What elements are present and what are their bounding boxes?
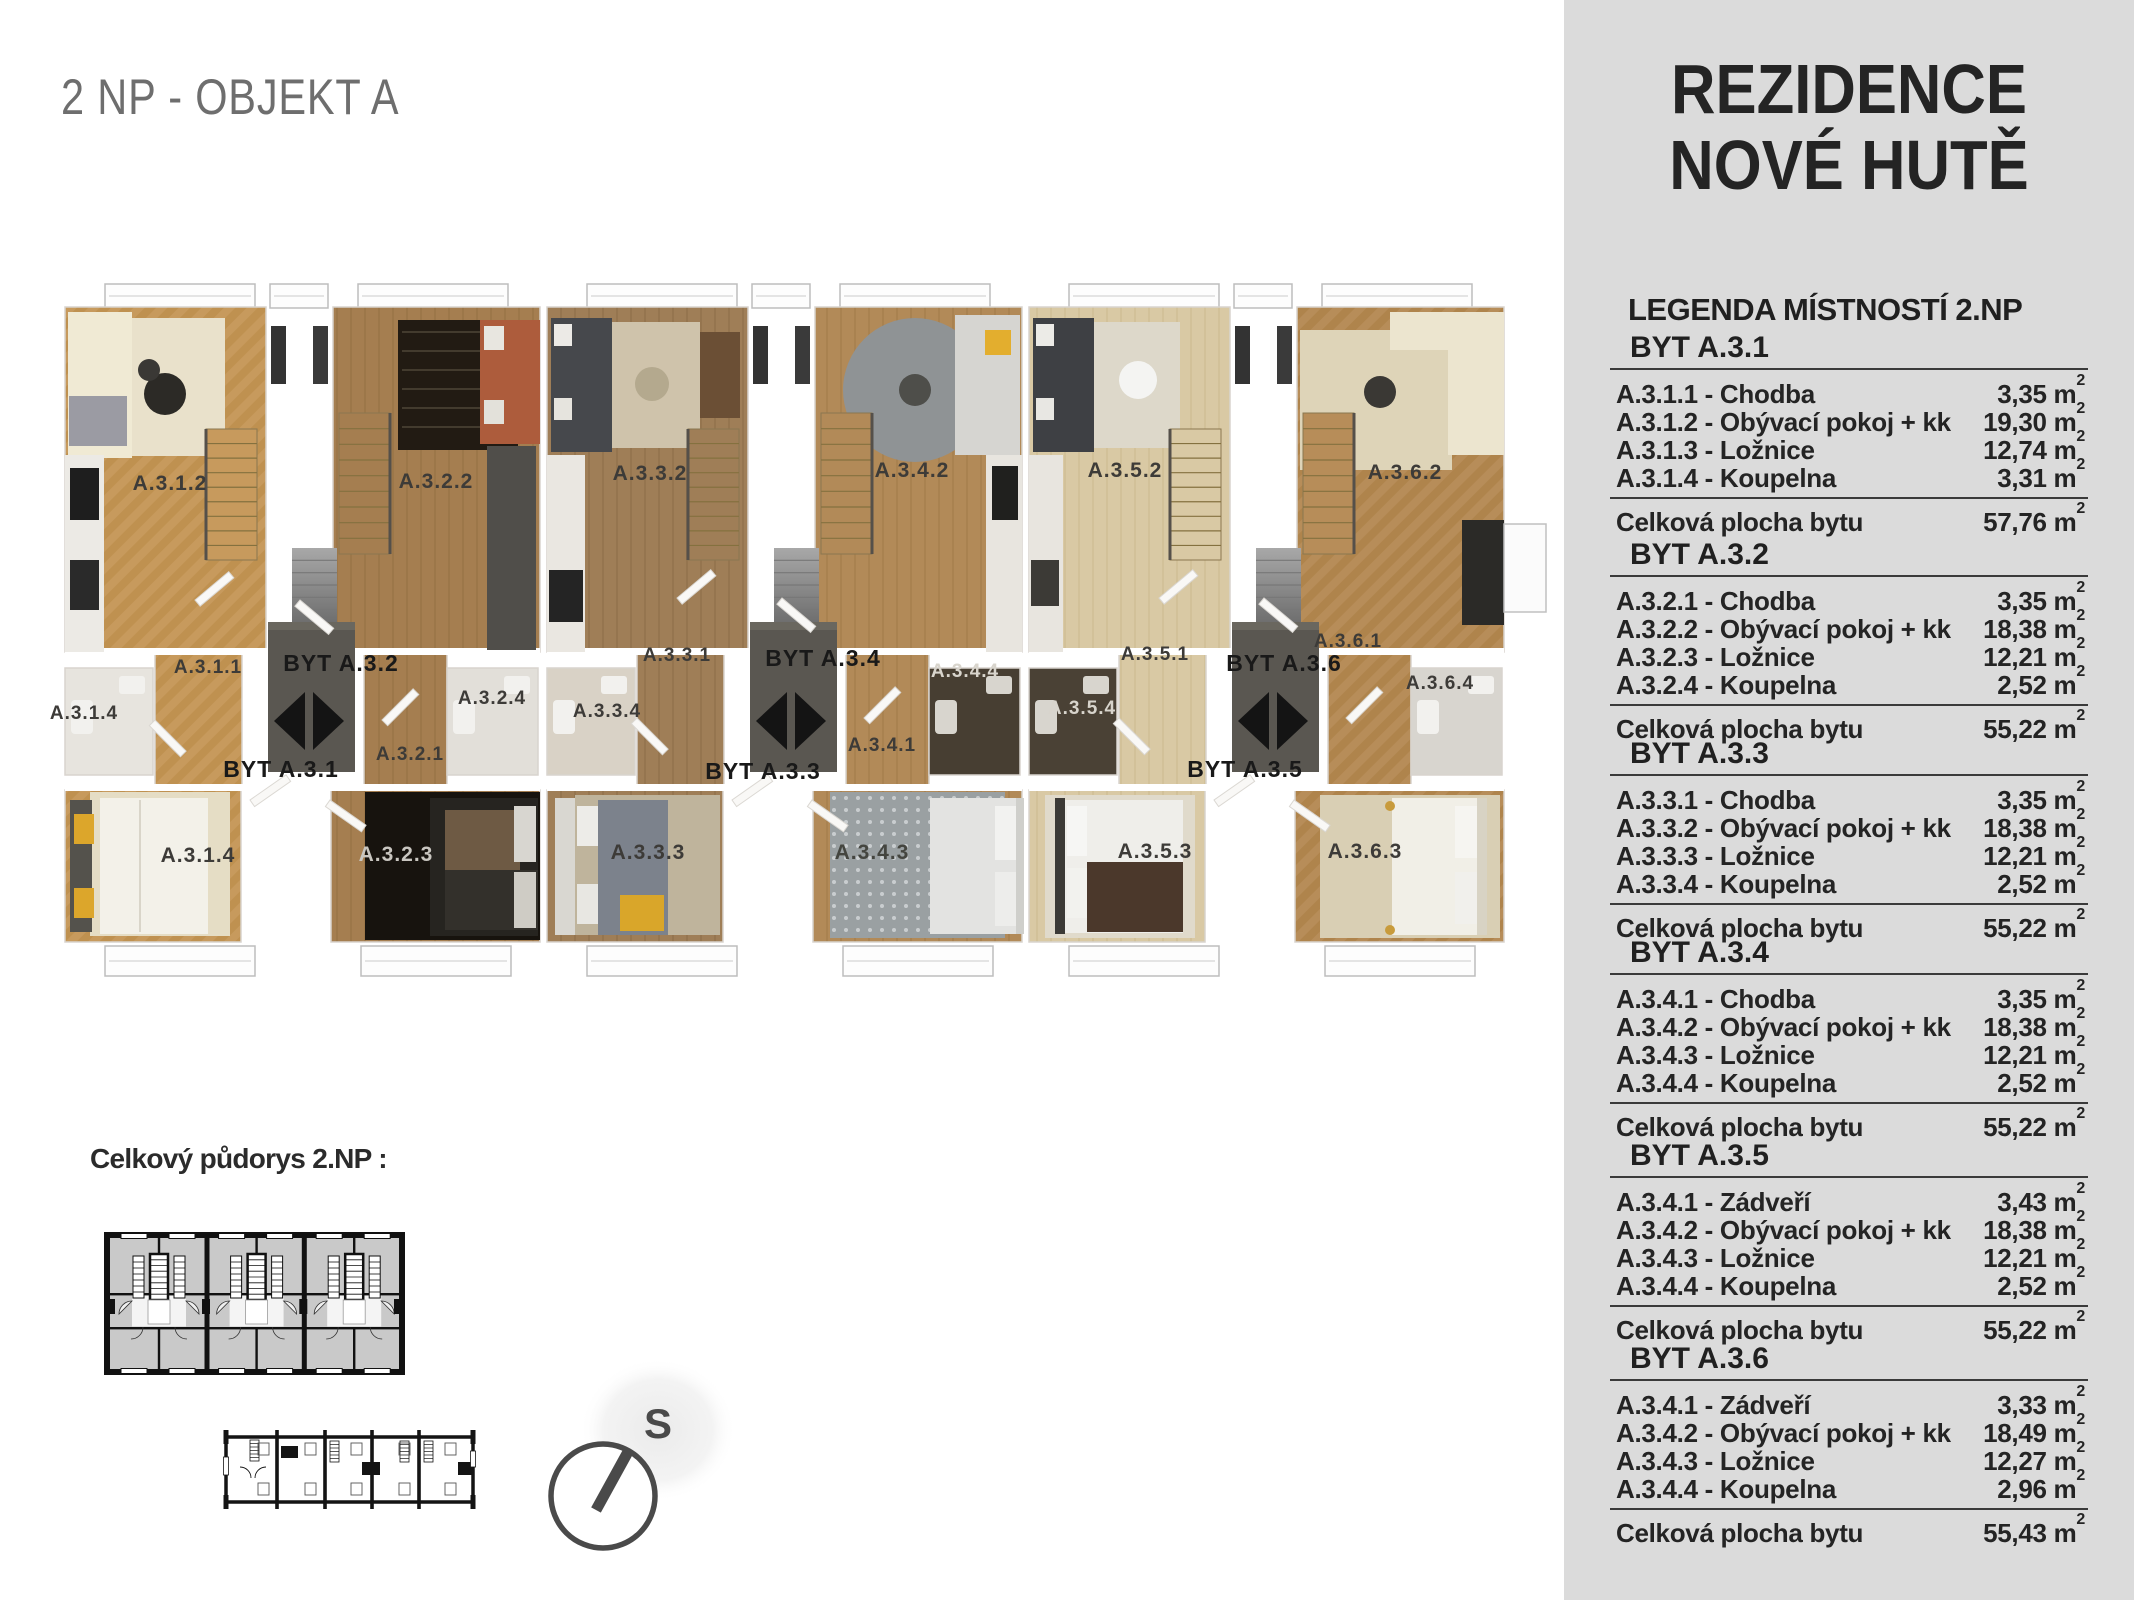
svg-text:A.3.6.3: A.3.6.3 (1328, 840, 1403, 863)
svg-text:A.3.1.1: A.3.1.1 (174, 657, 242, 678)
svg-text:A.3.6.1: A.3.6.1 (1314, 631, 1382, 652)
svg-text:A.3.3.4: A.3.3.4 (573, 701, 641, 722)
svg-text:S: S (644, 1400, 672, 1447)
svg-text:BYT A.3.6: BYT A.3.6 (1226, 650, 1342, 676)
svg-text:A.3.2.4: A.3.2.4 (458, 688, 526, 709)
svg-text:A.3.4.2: A.3.4.2 (875, 459, 950, 482)
svg-text:A.3.5.2: A.3.5.2 (1088, 459, 1163, 482)
svg-text:A.3.6.4: A.3.6.4 (1406, 673, 1474, 694)
svg-text:A.3.6.2: A.3.6.2 (1368, 461, 1443, 484)
svg-text:A.3.5.4: A.3.5.4 (1048, 698, 1116, 719)
svg-text:A.3.4.1: A.3.4.1 (848, 735, 916, 756)
svg-text:A.3.3.3: A.3.3.3 (611, 841, 686, 864)
svg-text:BYT A.3.4: BYT A.3.4 (765, 645, 881, 671)
svg-text:A.3.3.2: A.3.3.2 (613, 462, 688, 485)
svg-text:BYT A.3.1: BYT A.3.1 (223, 756, 339, 782)
svg-text:A.3.5.3: A.3.5.3 (1118, 840, 1193, 863)
svg-text:A.3.2.3: A.3.2.3 (359, 843, 434, 866)
svg-text:A.3.2.1: A.3.2.1 (376, 744, 444, 765)
svg-text:A.3.4.4: A.3.4.4 (931, 661, 999, 682)
svg-text:A.3.3.1: A.3.3.1 (643, 645, 711, 666)
svg-text:A.3.1.2: A.3.1.2 (133, 472, 208, 495)
svg-text:BYT A.3.5: BYT A.3.5 (1187, 756, 1303, 782)
svg-text:A.3.4.3: A.3.4.3 (835, 841, 910, 864)
svg-text:BYT A.3.3: BYT A.3.3 (705, 758, 821, 784)
svg-text:BYT A.3.2: BYT A.3.2 (283, 650, 399, 676)
svg-text:A.3.1.4: A.3.1.4 (161, 844, 236, 867)
svg-text:A.3.1.4: A.3.1.4 (50, 703, 118, 724)
svg-text:A.3.5.1: A.3.5.1 (1121, 644, 1189, 665)
svg-text:A.3.2.2: A.3.2.2 (399, 470, 474, 493)
